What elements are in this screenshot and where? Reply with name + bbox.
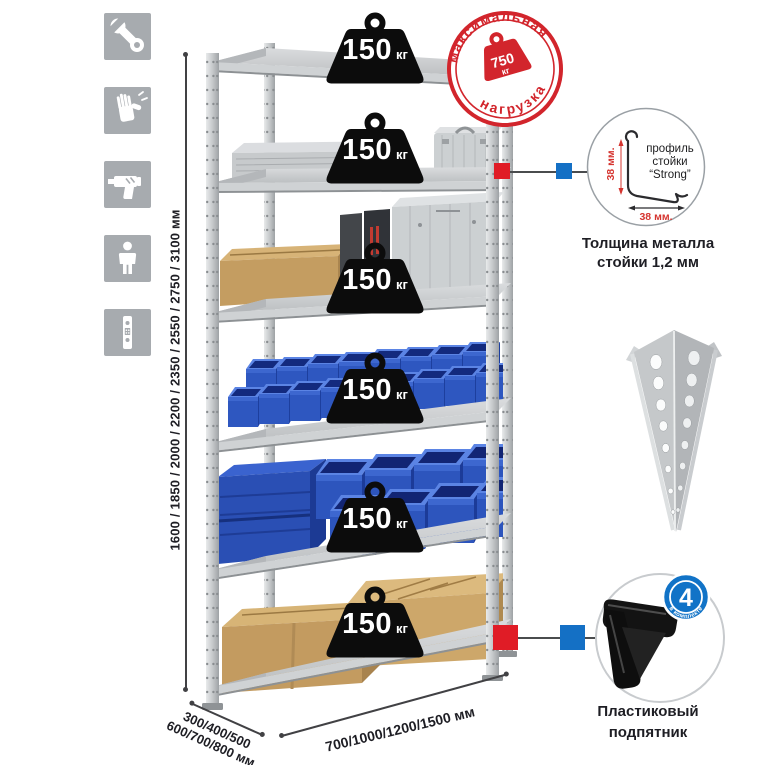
shelf-load-badge: 150кг xyxy=(318,586,432,662)
wrench-icon xyxy=(104,13,151,60)
shelf-load-badge: 150кг xyxy=(318,112,432,188)
callout-line-profile xyxy=(502,171,590,173)
height-dimension-line xyxy=(185,55,187,689)
profile-detail-circle: 38 мм. профиль стойки “Strong” 38 мм. xyxy=(584,105,708,234)
shelf-load-badge: 150кг xyxy=(318,12,432,88)
product-infographic: 1600 / 1850 / 2000 / 2200 / 2350 / 2550 … xyxy=(0,0,765,765)
foot-detail-circle: 4 в комплекте xyxy=(592,569,730,712)
person-icon xyxy=(104,235,151,282)
svg-text:4: 4 xyxy=(679,584,693,612)
shelf-load-badge: 150кг xyxy=(318,481,432,557)
shelf-load-badge: 150кг xyxy=(318,352,432,428)
blue-marker-foot xyxy=(560,625,585,650)
blue-marker-profile xyxy=(556,163,572,179)
svg-text:38 мм.: 38 мм. xyxy=(639,211,672,223)
foot-caption: Пластиковый подпятник xyxy=(568,701,728,743)
quantity-badge: 4 в комплекте xyxy=(663,574,709,620)
shelf-load-badge: 150кг xyxy=(318,242,432,318)
svg-text:38 мм.: 38 мм. xyxy=(605,147,617,180)
height-dimension-label: 1600 / 1850 / 2000 / 2200 / 2350 / 2550 … xyxy=(168,209,183,550)
svg-text:“Strong”: “Strong” xyxy=(649,169,691,181)
gloves-icon xyxy=(104,87,151,134)
svg-text:профиль: профиль xyxy=(646,143,694,155)
profile-caption: Толщина металла стойки 1,2 мм xyxy=(566,234,730,272)
perforated-profile-icon xyxy=(104,309,151,356)
red-marker-profile xyxy=(494,163,510,179)
red-marker-foot xyxy=(493,625,518,650)
corner-post-image xyxy=(604,300,744,535)
svg-text:стойки: стойки xyxy=(652,156,687,168)
assembly-icons-column xyxy=(104,13,151,383)
drill-icon xyxy=(104,161,151,208)
